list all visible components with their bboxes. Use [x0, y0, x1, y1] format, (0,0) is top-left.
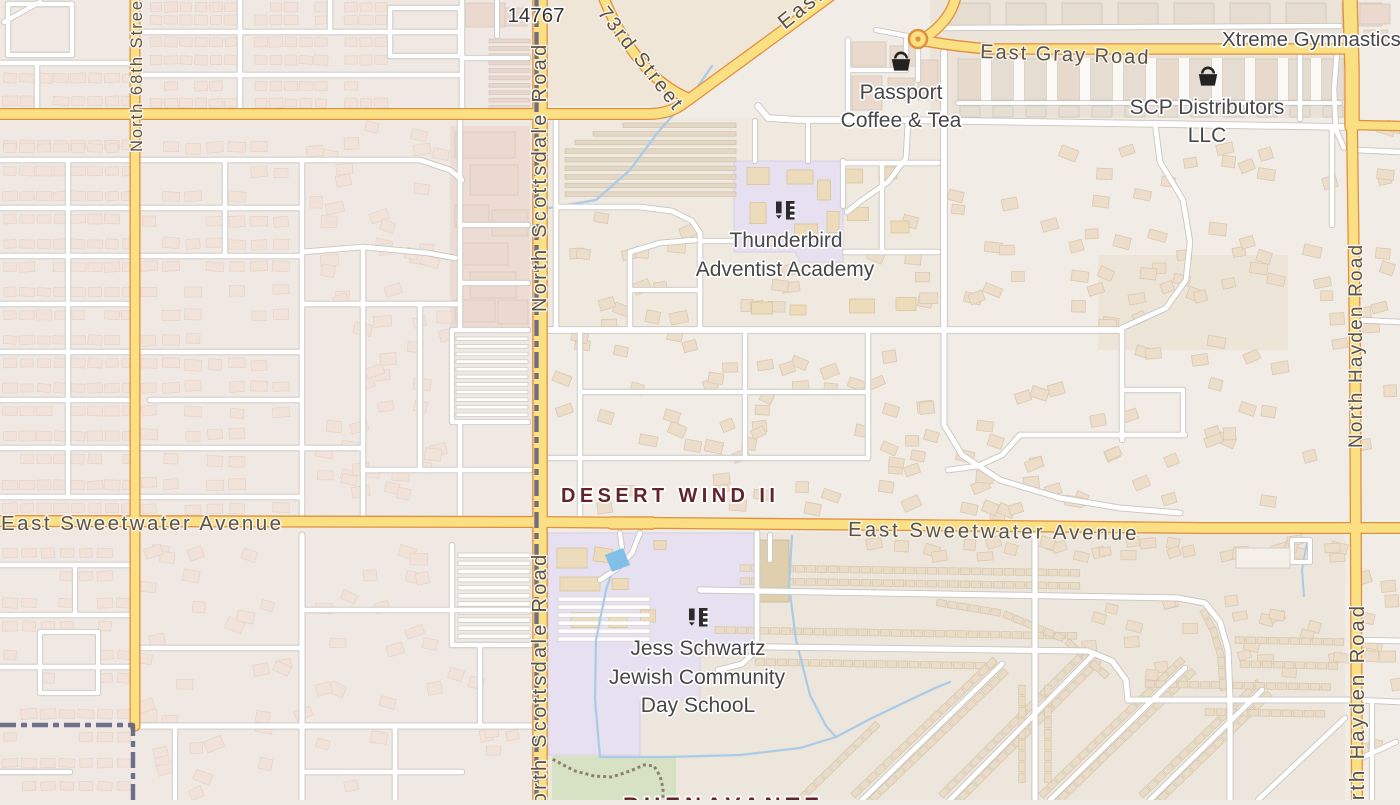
svg-text:East Sweetwater Avenue: East Sweetwater Avenue — [1, 512, 284, 535]
svg-text:North Hayden Road: North Hayden Road — [1346, 243, 1367, 448]
svg-text:Thunderbird: Thunderbird — [729, 229, 842, 252]
svg-text:Day SchooL: Day SchooL — [641, 694, 755, 717]
svg-text:LLC: LLC — [1188, 124, 1227, 147]
svg-text:Passport: Passport — [860, 81, 943, 104]
svg-text:North Hayden Road: North Hayden Road — [1346, 603, 1369, 800]
svg-text:North Scottsdale Road: North Scottsdale Road — [529, 551, 551, 800]
svg-text:SCP Distributors: SCP Distributors — [1130, 96, 1285, 119]
svg-text:DESERT WIND II: DESERT WIND II — [561, 485, 779, 507]
svg-text:Jess Schwartz: Jess Schwartz — [630, 637, 765, 660]
svg-text:14767: 14767 — [507, 4, 564, 27]
svg-text:North 68th Street: North 68th Street — [128, 0, 146, 152]
svg-text:East Sweetwater Avenue: East Sweetwater Avenue — [848, 518, 1140, 545]
svg-text:North Scottsdale Road: North Scottsdale Road — [529, 41, 551, 312]
svg-text:Jewish Community: Jewish Community — [609, 666, 786, 689]
svg-text:Coffee & Tea: Coffee & Tea — [841, 109, 962, 132]
svg-text:BUENAVANTE: BUENAVANTE — [623, 793, 824, 800]
svg-text:Xtreme Gymnastics: Xtreme Gymnastics — [1222, 28, 1400, 51]
svg-text:Adventist Academy: Adventist Academy — [696, 258, 875, 281]
